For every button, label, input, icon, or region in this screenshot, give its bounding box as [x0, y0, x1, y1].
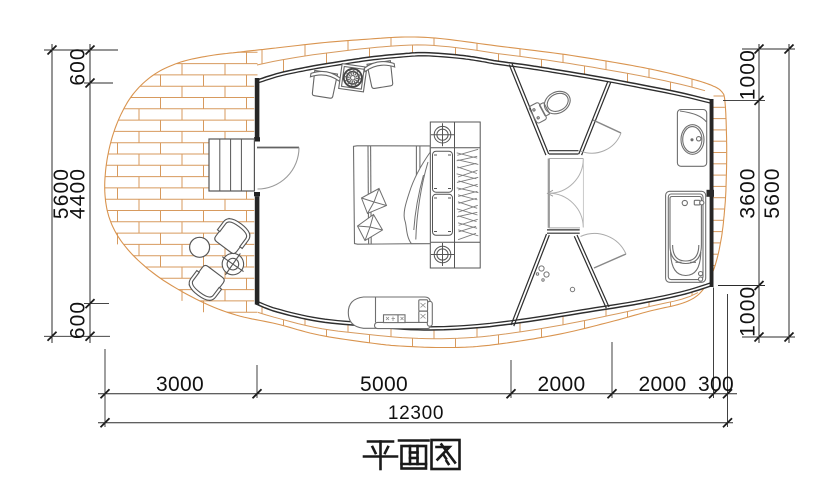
svg-text:1000: 1000: [737, 286, 760, 337]
svg-text:5600: 5600: [761, 167, 784, 218]
svg-text:5000: 5000: [360, 373, 408, 396]
svg-text:2000: 2000: [538, 373, 586, 396]
svg-text:3600: 3600: [737, 167, 760, 218]
svg-text:5600: 5600: [50, 168, 73, 219]
svg-text:2000: 2000: [639, 373, 687, 396]
svg-text:600: 600: [67, 301, 90, 339]
svg-text:1000: 1000: [737, 49, 760, 100]
svg-text:12300: 12300: [388, 403, 444, 424]
svg-text:300: 300: [698, 373, 734, 396]
svg-text:600: 600: [67, 47, 90, 85]
svg-text:3000: 3000: [156, 373, 204, 396]
